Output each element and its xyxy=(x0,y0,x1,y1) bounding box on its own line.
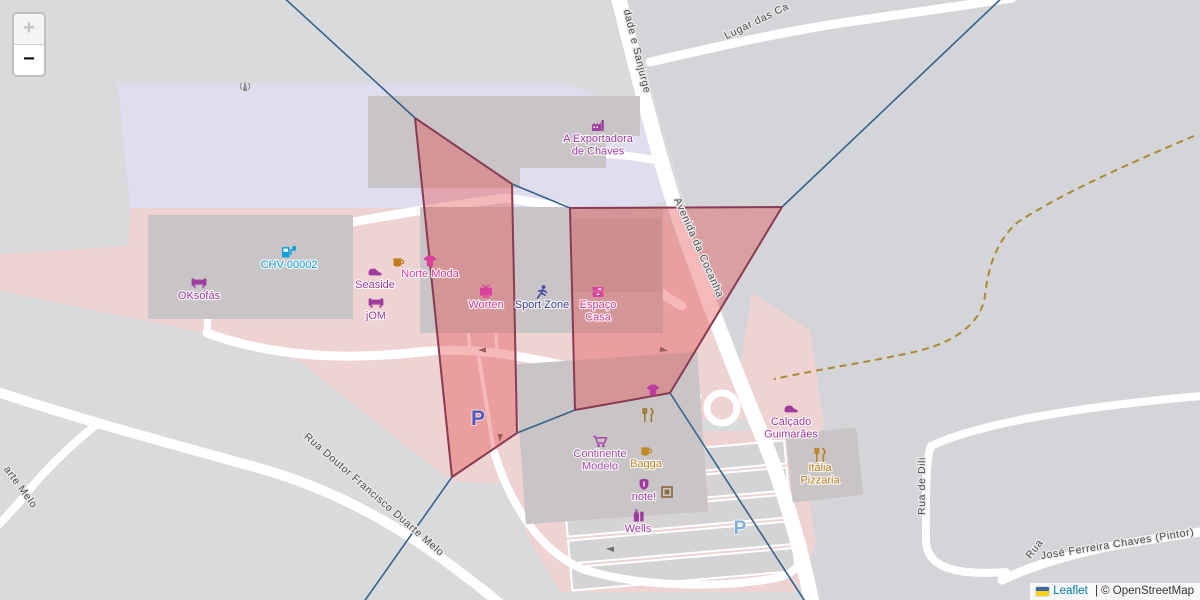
bagga-label: Bagga xyxy=(630,458,663,470)
continente-modelo-label: Continente xyxy=(573,448,626,460)
zoom-out-button[interactable]: − xyxy=(14,45,44,75)
street-label-rua-de-dili: Rua de Dili xyxy=(916,457,928,515)
parking-west-label: P xyxy=(471,407,485,430)
leaflet-link[interactable]: Leaflet xyxy=(1053,585,1088,597)
building-retail-west xyxy=(148,215,353,319)
note-label: note! xyxy=(632,491,656,503)
espaco-casa-label: Espaço xyxy=(580,299,617,311)
ukraine-flag-icon xyxy=(1036,587,1049,596)
map-canvas[interactable]: dade e SanjurgeLugar das CaAvenida da Co… xyxy=(0,0,1200,600)
shelf-icon xyxy=(593,287,604,297)
seaside-label: Seaside xyxy=(355,279,395,291)
oksofas-label: OKsofás xyxy=(178,290,221,302)
attribution-text: | © OpenStreetMap xyxy=(1092,585,1194,597)
attribution-bar: Leaflet | © OpenStreetMap xyxy=(1030,583,1200,600)
calcado-guimaraes-label: Guimarães xyxy=(764,429,818,441)
norte-moda-label: Norte Moda xyxy=(401,268,459,280)
a-exportadora-de-chaves-label: A Exportadora xyxy=(563,133,634,145)
sport-zone-label: Sport Zone xyxy=(515,299,569,311)
map-viewport[interactable]: dade e SanjurgeLugar das CaAvenida da Co… xyxy=(0,0,1200,600)
parking-south-label: P xyxy=(734,518,747,539)
wells-label: Wells xyxy=(625,523,652,535)
zoom-control: + − xyxy=(12,12,46,77)
a-exportadora-de-chaves-label: de Chaves xyxy=(572,146,625,158)
continente-modelo-label: Modelo xyxy=(582,461,618,473)
chv-00002-label: CHV-00002 xyxy=(261,259,318,271)
espaco-casa-label: Casa xyxy=(585,312,612,324)
calcado-guimaraes-label: Calçado xyxy=(771,416,811,428)
italia-pizzaria-label: Pizzaria xyxy=(800,475,840,487)
zoom-in-button[interactable]: + xyxy=(14,14,44,45)
italia-pizzaria-label: Itália xyxy=(808,462,832,474)
worten-label: Worten xyxy=(468,299,503,311)
jom-label: jOM xyxy=(365,310,386,322)
